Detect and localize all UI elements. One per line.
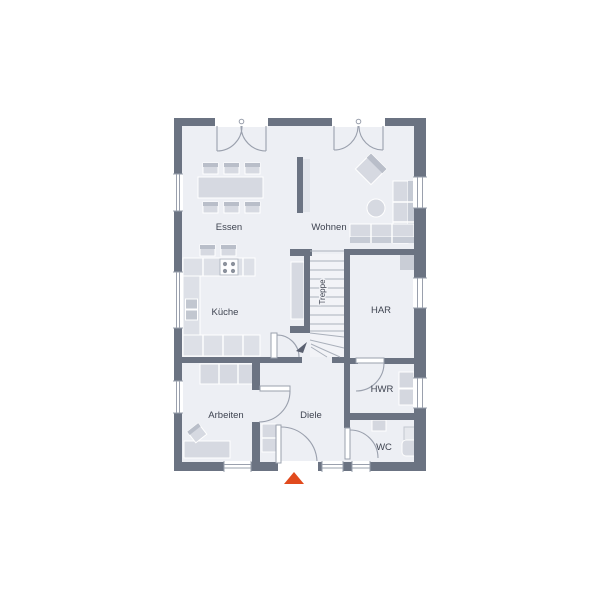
window-wohnen [413, 177, 427, 208]
sink-icon [186, 299, 198, 309]
window-essen [173, 174, 183, 211]
room-label-diele: Diele [300, 410, 322, 421]
room-label-treppe: Treppe [318, 279, 327, 305]
window-hwr [413, 378, 427, 408]
entrance-arrow-icon [284, 472, 304, 484]
window-wc-south [352, 461, 370, 472]
room-label-har: HAR [371, 305, 391, 316]
room-label-wohnen: Wohnen [311, 222, 346, 233]
dining-set [198, 163, 263, 213]
tall-cabinet [291, 262, 304, 319]
coffee-table [367, 199, 385, 217]
room-label-arbeiten: Arbeiten [208, 410, 243, 421]
door-pivot-icon [356, 119, 361, 124]
room-label-essen: Essen [216, 222, 242, 233]
door-pivot-icon [239, 119, 244, 124]
shaft-block [400, 254, 414, 270]
washer-dryer [399, 372, 414, 405]
room-label-hwr: HWR [371, 384, 394, 395]
floorplan-canvas: Treppe Essen Wohnen Küche HAR HWR Arbeit… [0, 0, 600, 600]
floor-plan: Treppe Essen Wohnen Küche HAR HWR Arbeit… [0, 0, 600, 600]
room-label-kueche: Küche [212, 307, 239, 318]
tv-wall [297, 157, 310, 213]
dining-chairs-bottom [203, 202, 260, 213]
wc-sink-icon [372, 420, 386, 431]
room-label-wc: WC [376, 442, 392, 453]
desk [184, 441, 230, 458]
stove-icon [220, 259, 238, 275]
dining-table [198, 177, 263, 198]
window-arbeiten [173, 381, 183, 413]
hall-wardrobe [262, 424, 276, 452]
wardrobe [200, 364, 257, 384]
window-arbeiten-south [224, 461, 251, 472]
dining-chairs-top [203, 163, 260, 174]
window-kueche [173, 272, 183, 328]
window-diele-south [322, 461, 343, 472]
window-har [413, 278, 427, 308]
